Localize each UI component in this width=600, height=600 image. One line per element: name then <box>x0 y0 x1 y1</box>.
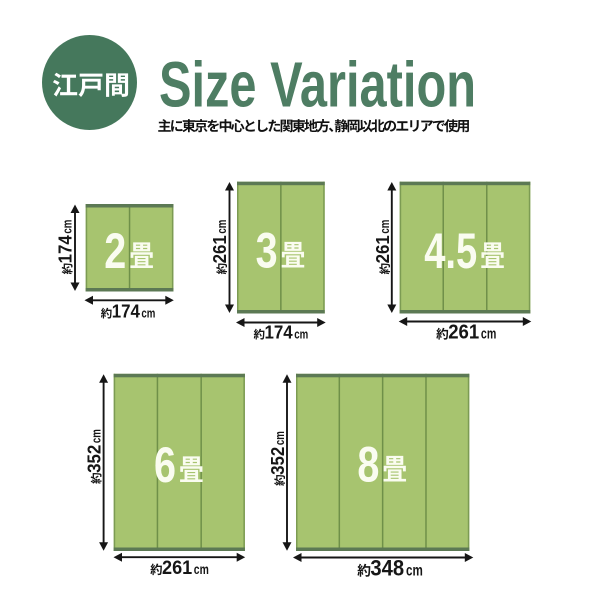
svg-text:cm: cm <box>141 306 155 321</box>
svg-text:348: 348 <box>370 556 404 581</box>
svg-text:8: 8 <box>357 437 379 493</box>
svg-text:174: 174 <box>112 301 141 322</box>
svg-text:174: 174 <box>265 322 294 343</box>
svg-text:6: 6 <box>154 437 176 493</box>
svg-text:cm: cm <box>89 429 104 443</box>
svg-text:352: 352 <box>84 445 105 473</box>
svg-text:3: 3 <box>256 223 278 279</box>
svg-text:cm: cm <box>406 563 423 580</box>
svg-text:261: 261 <box>372 235 393 263</box>
svg-text:261: 261 <box>162 557 192 579</box>
svg-text:2: 2 <box>104 223 126 279</box>
svg-text:cm: cm <box>214 220 229 234</box>
svg-text:cm: cm <box>194 561 209 577</box>
svg-text:cm: cm <box>481 327 496 343</box>
svg-text:261: 261 <box>448 322 479 344</box>
svg-text:4.5: 4.5 <box>424 223 477 279</box>
svg-text:Size Variation: Size Variation <box>159 49 476 121</box>
svg-text:352: 352 <box>267 447 288 475</box>
svg-text:cm: cm <box>272 431 287 445</box>
svg-text:cm: cm <box>294 327 308 342</box>
svg-text:261: 261 <box>209 235 230 263</box>
svg-text:174: 174 <box>55 235 76 264</box>
svg-text:cm: cm <box>377 220 392 234</box>
svg-text:cm: cm <box>60 220 75 234</box>
